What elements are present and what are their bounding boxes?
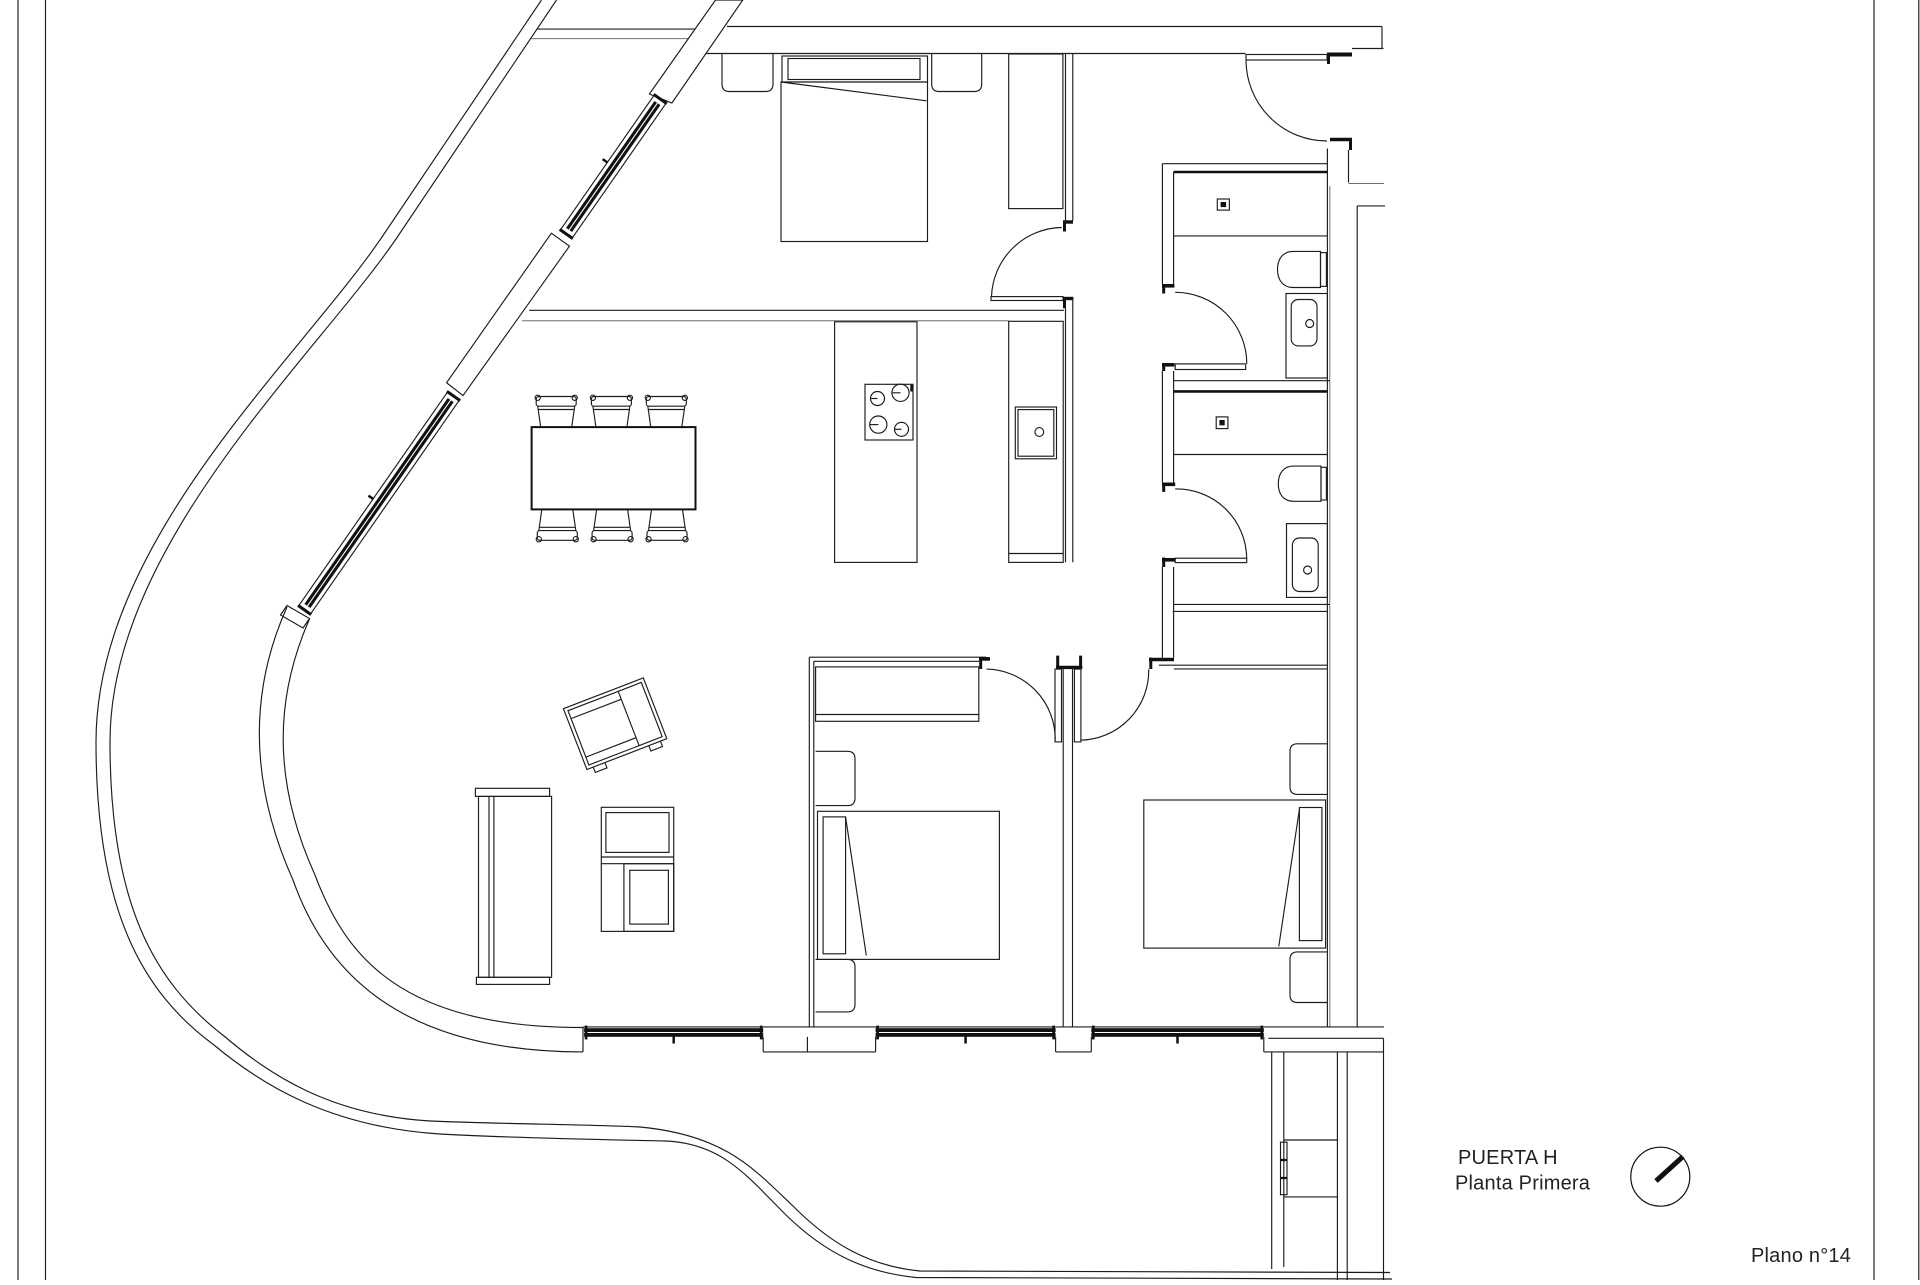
svg-text:PUERTA H: PUERTA H	[1458, 1147, 1558, 1169]
svg-text:Planta Primera: Planta Primera	[1455, 1173, 1591, 1195]
svg-text:Plano n°14: Plano n°14	[1751, 1245, 1851, 1267]
